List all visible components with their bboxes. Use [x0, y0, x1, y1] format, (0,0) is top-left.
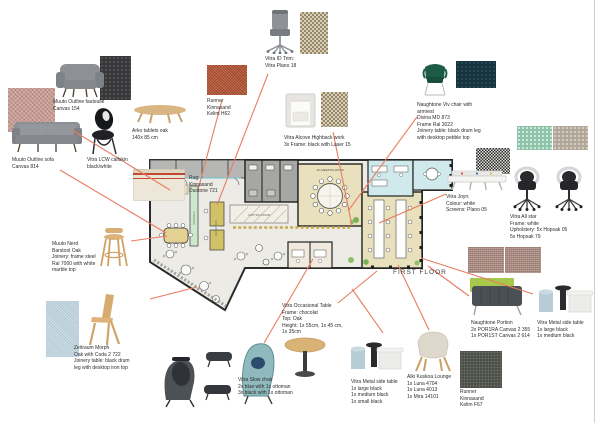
meeting-room-label: 12x MEETING ROOM: [316, 168, 344, 172]
fabric-swatch-hopsak-rosy-1: [468, 247, 504, 273]
vitra-id-trim-chair-photo: [263, 8, 297, 54]
fabric-swatch-divina-navy: [456, 61, 496, 88]
vitra-slow-chairs-photo: [152, 338, 280, 408]
vitra-alcove-label: Vitra Alcove Highback work 3x Frame: bla…: [284, 135, 362, 148]
naughtone-portion-label: Naughtone Portion 2x POR1RA Canvas 2 355…: [471, 320, 539, 340]
page-edge: [594, 0, 595, 423]
furniture-specification-board: 12x MEETING ROOM: [0, 0, 600, 423]
metal-side-table-right-label: Vitra Metal side table 1x large black 1x…: [537, 320, 595, 340]
metal-side-table-center-label: Vitra Metal side table 1x large black 1x…: [351, 379, 405, 405]
muuto-nerd-label: Muuto Nerd Barstool Oak Joinery: frame s…: [52, 241, 102, 274]
fabric-swatch-hopsak-rosy-2: [505, 247, 541, 273]
arko-table-photo: [132, 102, 188, 124]
plan-focus-rooms: [288, 242, 332, 268]
vitra-allstar-upholstery-label: Upholstery: 5x Hopsak 05 5x Hopsak 79: [510, 227, 592, 240]
vitra-joyn-table-photo: [446, 167, 508, 191]
muuto-sofa-label: Muuto Outline sofa Canvas 814: [12, 157, 72, 170]
naughtone-viv-chair-photo: [417, 61, 453, 99]
naughtone-portion-daybed-photo: [470, 278, 524, 318]
plan-toilet-core: [245, 160, 298, 202]
alki-kuskoa-label: Alki Kuskoa Lounge 1x Luna 4704 1x Luna …: [407, 374, 463, 400]
vitra-lcw-label: Vitra LCW calfskin black/white: [87, 157, 145, 170]
fabric-swatch-laser: [321, 92, 348, 127]
plan-copying-room: COPYING ROOM: [230, 205, 288, 223]
vitra-allstar-label-text: Vitra All star Frame: white: [510, 214, 539, 227]
fabric-swatch-kelim-h62: [207, 65, 247, 95]
vitra-joyn-label: Vitra Joyn: Colour: white Screens: Plano…: [446, 194, 501, 214]
fabric-swatch-plano: [300, 12, 328, 54]
zeitraum-morph-chair-photo: [82, 292, 124, 348]
reception-label: RECEPTION: [214, 220, 218, 235]
vitra-lcw-chair-photo: [86, 108, 122, 156]
fabric-swatch-kelim-f67: [460, 351, 502, 388]
plan-meeting-room: 12x MEETING ROOM: [298, 164, 362, 226]
vitra-alcove-photo: [284, 92, 317, 130]
muuto-fauteuil-label: Muuto Outline fauteuile Canvas 154: [53, 99, 123, 112]
muuto-outline-sofa-photo: [10, 120, 84, 154]
alki-kuskoa-lounge-photo: [407, 328, 459, 373]
entrance-label: ENTRANCE: [193, 211, 196, 225]
vitra-occasional-label: Vitra Occasional Table Frame: chocolat T…: [282, 303, 344, 336]
arko-label: Arko tablets oak 140x 85 cm: [132, 128, 182, 141]
runner-h62-label: Runner Kinnasand Kelim H62: [207, 98, 249, 118]
naughtone-viv-label: Naughtone Viv chair with armrest Divina …: [417, 102, 507, 142]
vitra-allstar-label: Vitra All star Frame: whiteUpholstery: 5…: [510, 214, 592, 240]
first-floor-caption: FIRST FLOOR: [393, 269, 447, 276]
vitra-metal-side-tables-right-photo: [535, 280, 595, 317]
vitra-slow-chair-label: Vitra Slow chair 2x blue with 1x ottoman…: [238, 377, 300, 397]
fabric-swatch-hopsak-mint: [517, 126, 552, 150]
plan-plant: [348, 257, 354, 263]
vitra-metal-side-tables-photo: [347, 336, 405, 374]
rug-label: Rug: Kinnasand Duotone 721: [189, 175, 229, 195]
vitra-id-trim-label: Vitra ID Trim: Vitra Plano 18: [265, 56, 313, 69]
vitra-allstar-chairs-photo: [506, 166, 590, 212]
fabric-swatch-hopsak-gray: [553, 126, 588, 150]
copying-room-label: COPYING ROOM: [248, 213, 271, 217]
vitra-occasional-table-photo: [281, 334, 329, 382]
plan-office-room: [362, 192, 422, 268]
runner-f67-label: Runner Kinnasand Kelim F67: [460, 389, 502, 409]
zeitraum-morph-label: Zeitraum Morph Oak with Coda 2 722 Joine…: [74, 345, 149, 371]
muuto-outline-fauteuil-photo: [48, 60, 112, 98]
rug-swatch-duotone: [133, 169, 185, 201]
